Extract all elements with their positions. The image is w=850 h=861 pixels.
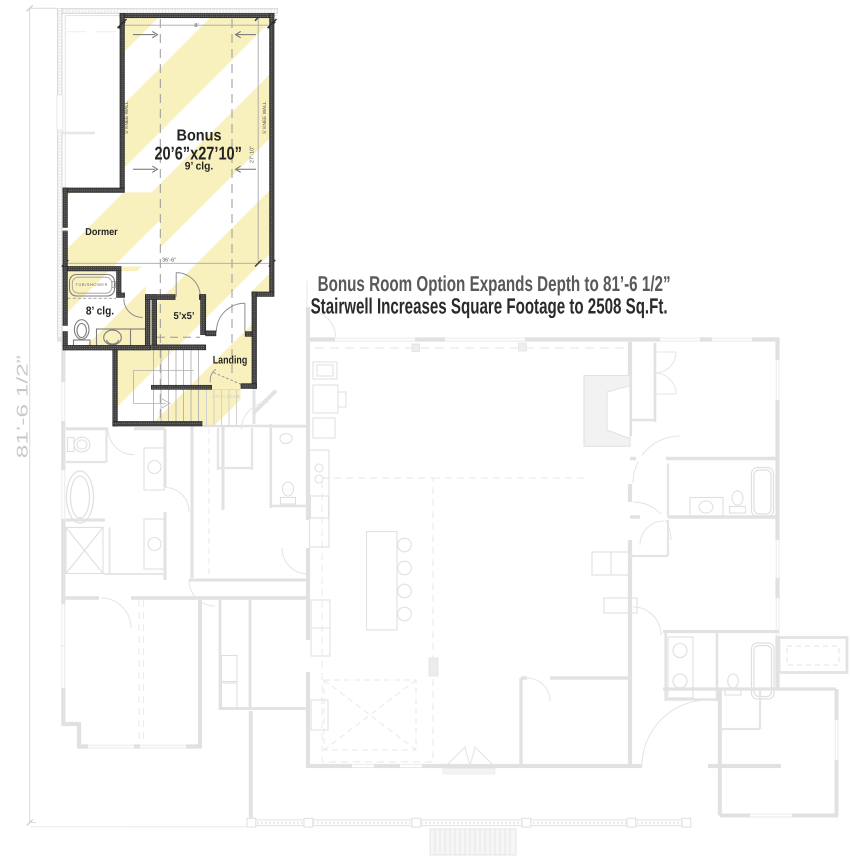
svg-text:8’: 8’ (194, 23, 198, 29)
svg-text:Dormer: Dormer (85, 227, 118, 238)
svg-text:Bonus Room Option Expands Dept: Bonus Room Option Expands Depth to 81’-6… (318, 272, 671, 296)
svg-text:5’ KNEE WALL: 5’ KNEE WALL (262, 101, 268, 134)
svg-text:27’-10”: 27’-10” (250, 146, 256, 163)
svg-text:Landing: Landing (213, 354, 248, 366)
svg-text:5’ KNEE WALL: 5’ KNEE WALL (124, 101, 130, 134)
svg-text:81’-6 1/2”: 81’-6 1/2” (15, 355, 32, 458)
svg-text:36’-6”: 36’-6” (162, 257, 176, 263)
svg-text:5’x5’: 5’x5’ (174, 311, 195, 322)
svg-text:8’ clg.: 8’ clg. (86, 306, 114, 318)
svg-text:9’ clg.: 9’ clg. (185, 161, 214, 173)
svg-text:TUB/SHOWER: TUB/SHOWER (76, 282, 108, 287)
svg-text:Stairwell Increases Square Foo: Stairwell Increases Square Footage to 25… (311, 294, 668, 319)
